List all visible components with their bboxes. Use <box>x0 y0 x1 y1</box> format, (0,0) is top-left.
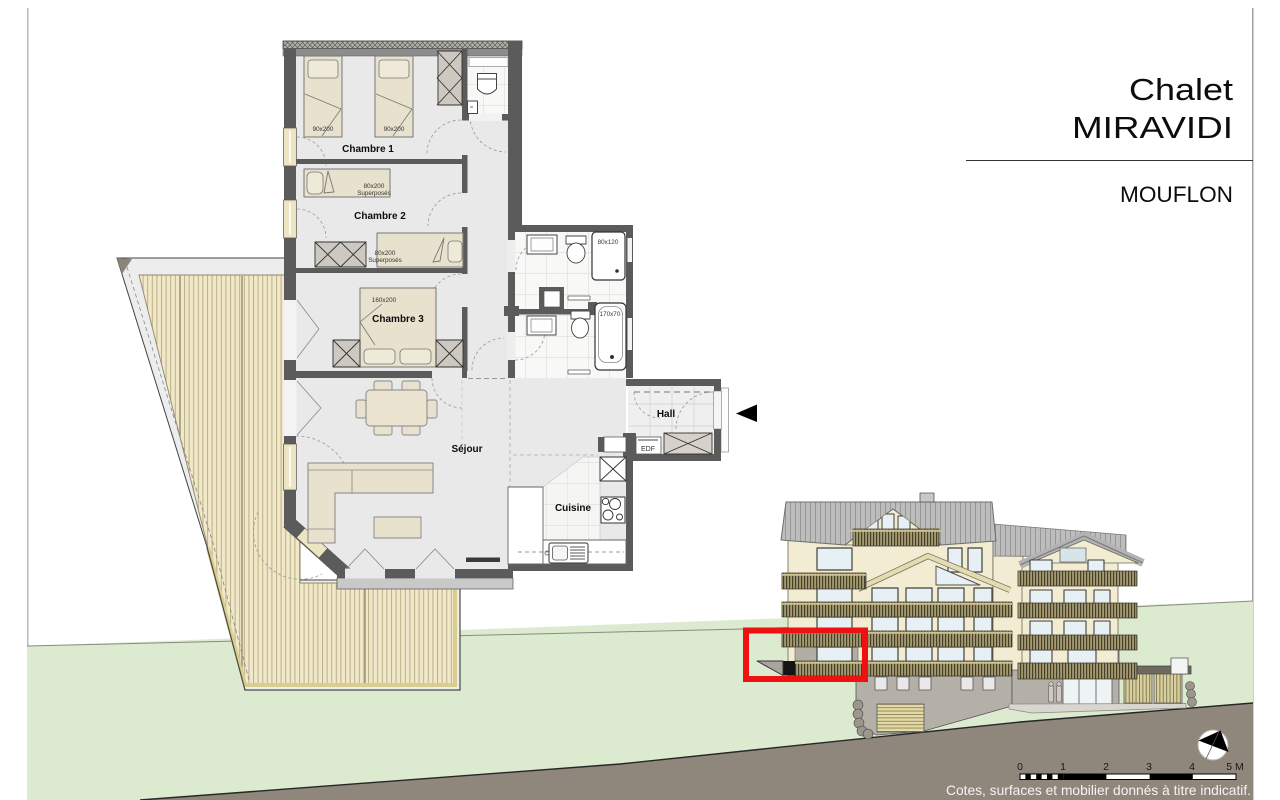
svg-text:2: 2 <box>1103 761 1109 773</box>
svg-text:4: 4 <box>1189 761 1195 773</box>
svg-text:Chalet: Chalet <box>1129 72 1233 107</box>
svg-text:Hall: Hall <box>657 409 676 420</box>
svg-text:90x200: 90x200 <box>384 126 405 133</box>
svg-text:Cuisine: Cuisine <box>555 503 592 514</box>
svg-text:5 M: 5 M <box>1226 761 1244 773</box>
svg-text:160x200: 160x200 <box>372 297 397 304</box>
svg-text:170x70: 170x70 <box>600 311 621 318</box>
svg-text:3: 3 <box>1146 761 1152 773</box>
svg-text:0: 0 <box>1017 761 1023 773</box>
svg-text:Superposés: Superposés <box>368 257 402 264</box>
svg-text:80x200: 80x200 <box>364 183 385 190</box>
svg-text:80x120: 80x120 <box>598 239 619 246</box>
svg-text:1: 1 <box>1060 761 1066 773</box>
svg-text:Chambre 2: Chambre 2 <box>354 211 406 222</box>
svg-text:Chambre 3: Chambre 3 <box>372 314 424 325</box>
svg-text:Séjour: Séjour <box>451 444 482 455</box>
svg-text:90x200: 90x200 <box>313 126 334 133</box>
svg-text:MIRAVIDI: MIRAVIDI <box>1072 110 1233 145</box>
svg-text:MOUFLON: MOUFLON <box>1120 182 1233 207</box>
svg-text:80x200: 80x200 <box>375 250 396 257</box>
svg-text:Superposés: Superposés <box>357 190 391 197</box>
svg-text:Chambre 1: Chambre 1 <box>342 144 394 155</box>
svg-text:Cotes, surfaces et mobilier do: Cotes, surfaces et mobilier donnés à tit… <box>946 783 1251 798</box>
svg-text:EDF: EDF <box>641 446 655 453</box>
